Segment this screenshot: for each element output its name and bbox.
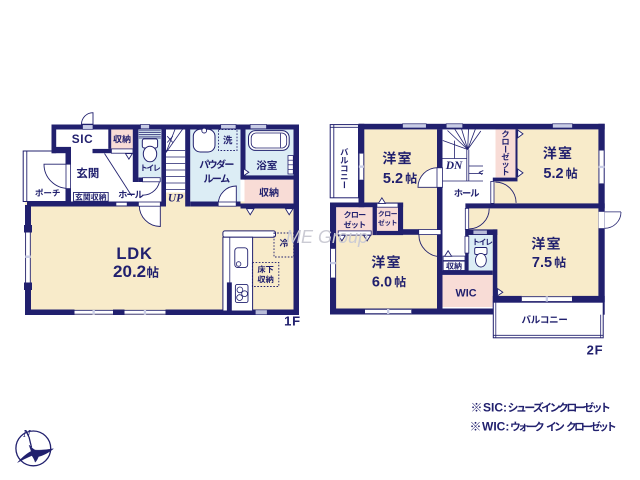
svg-text:2F: 2F [587,343,604,358]
svg-text:DN: DN [445,160,463,172]
svg-text:6.0: 6.0 [372,275,392,291]
svg-text:SIC: SIC [72,132,93,146]
svg-text:WIC:: WIC: [482,420,509,434]
svg-text:LDK: LDK [116,245,152,263]
svg-text:UP: UP [168,193,184,205]
svg-text:N: N [22,429,31,440]
svg-text:WIC: WIC [456,287,477,299]
svg-text:20.2: 20.2 [113,262,146,281]
svg-text:SIC:: SIC: [483,401,507,415]
svg-text:5.2: 5.2 [543,166,563,182]
svg-text:1F: 1F [284,314,301,329]
svg-text:ME Group: ME Group [286,227,368,247]
svg-text:7.5: 7.5 [532,255,552,271]
svg-text:5.2: 5.2 [383,171,403,187]
